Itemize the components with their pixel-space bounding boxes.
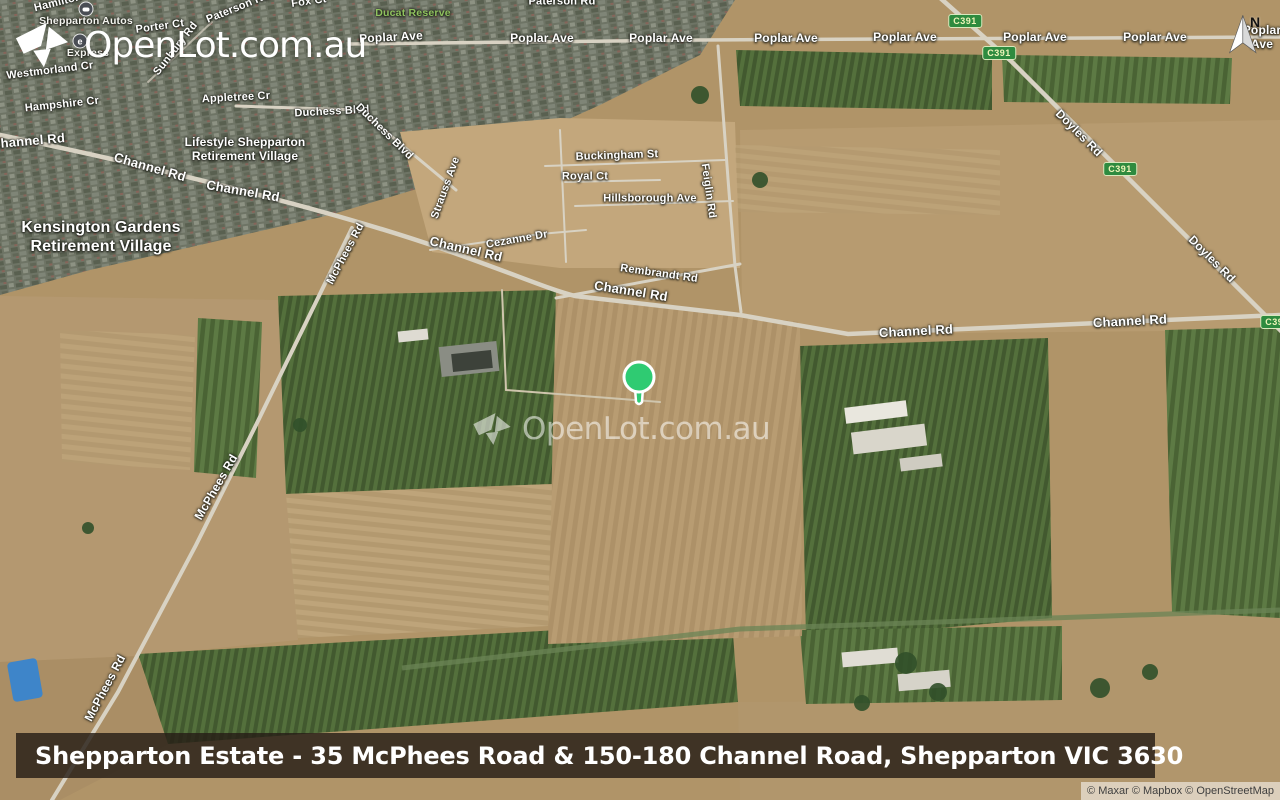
- compass-north-button[interactable]: N: [1226, 12, 1270, 58]
- map-attribution[interactable]: © Maxar © Mapbox © OpenStreetMap: [1081, 782, 1280, 800]
- north-label: N: [1250, 14, 1260, 30]
- map-stage[interactable]: HamiltonShepparton AutosPorter CtPaterso…: [0, 0, 1280, 800]
- property-title-banner: Shepparton Estate - 35 McPhees Road & 15…: [16, 733, 1155, 778]
- property-marker[interactable]: [618, 356, 660, 415]
- route-shield: C391: [948, 14, 982, 28]
- car-poi-icon: [79, 2, 94, 17]
- route-shield: C391: [1260, 315, 1280, 329]
- route-shield: C391: [1103, 162, 1137, 176]
- openlot-logo-icon: [14, 20, 70, 70]
- property-title: Shepparton Estate - 35 McPhees Road & 15…: [35, 742, 1183, 770]
- openlot-logo[interactable]: OpenLot.com.au: [14, 20, 366, 70]
- openlot-logo-text: OpenLot.com.au: [84, 25, 366, 66]
- route-shield: C391: [982, 46, 1016, 60]
- marker-head: [624, 362, 654, 392]
